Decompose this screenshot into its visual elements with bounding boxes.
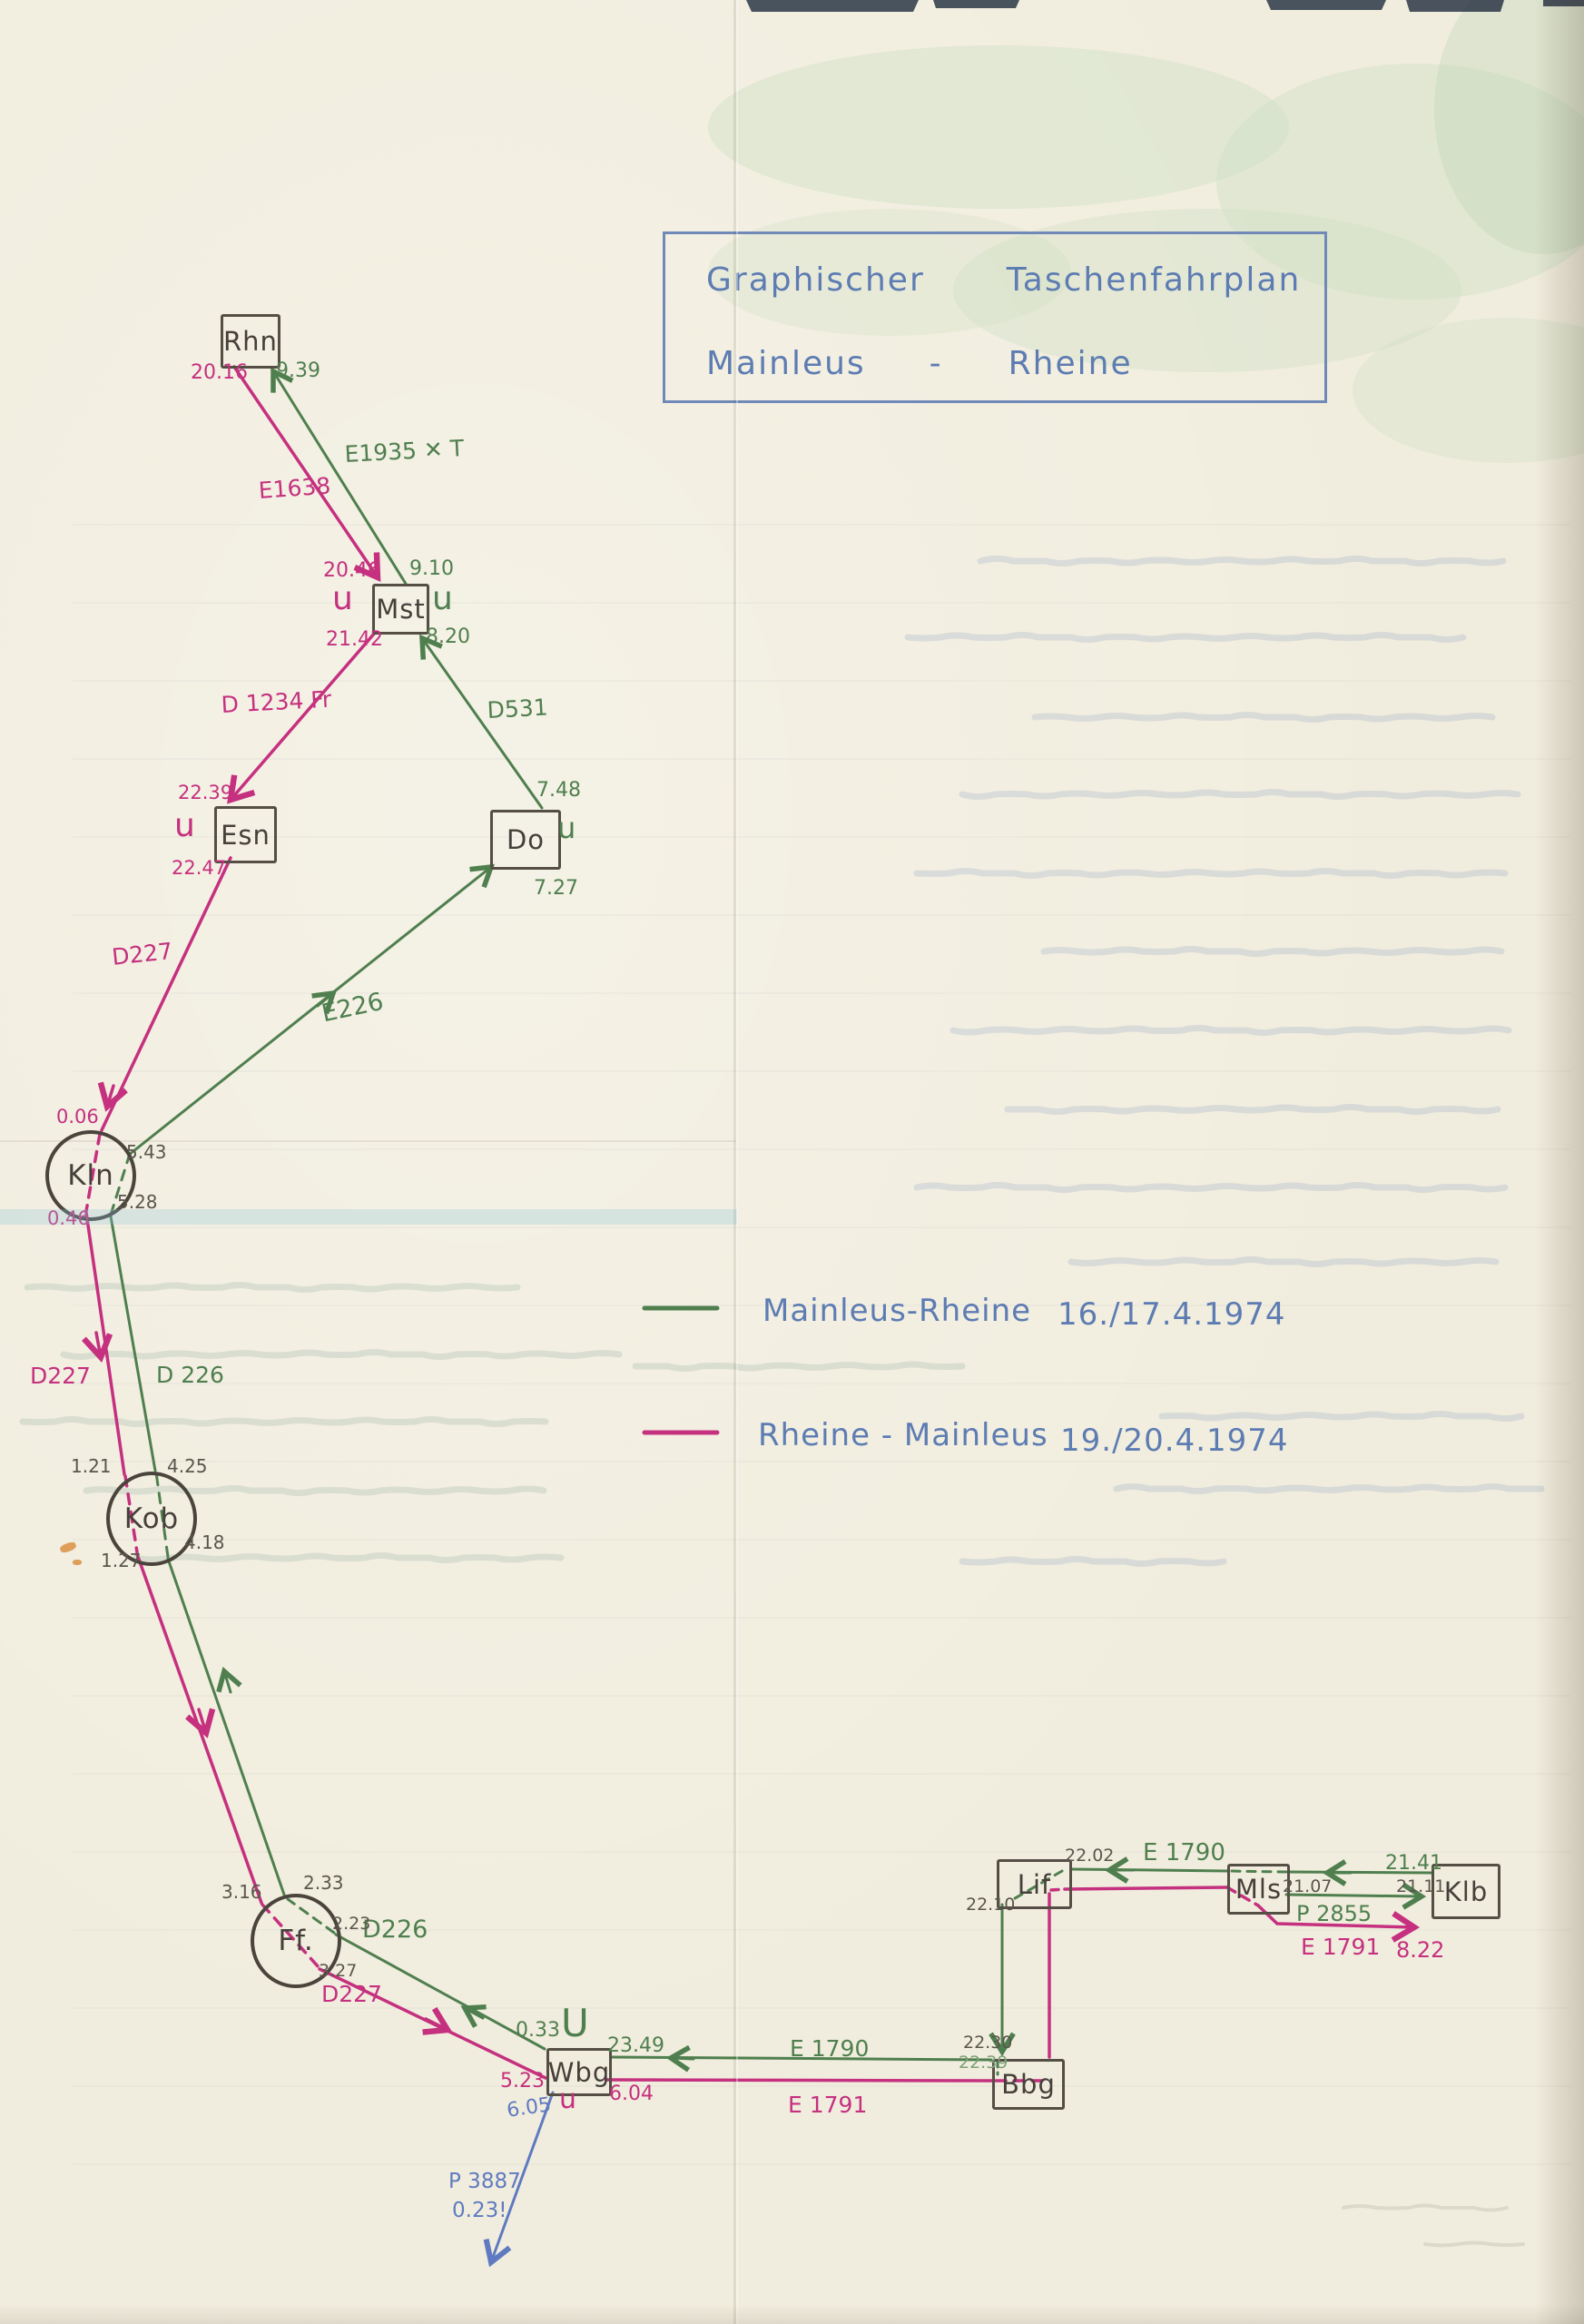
title-word-taschenfahrplan: Taschenfahrplan xyxy=(1007,261,1302,299)
label-5-28: 5.28 xyxy=(117,1193,158,1211)
station-label-rhn: Rhn xyxy=(223,326,278,357)
label-e1935-t: E1935 ✕ T xyxy=(344,437,465,466)
label-9-39: 9.39 xyxy=(276,361,320,381)
station-label-kob: Kob xyxy=(124,1502,179,1535)
station-label-do: Do xyxy=(507,824,545,855)
page-edge-shadow xyxy=(1534,0,1584,2324)
label-e-1790: E 1790 xyxy=(790,2037,869,2060)
top-edge-ink-marks xyxy=(746,0,1584,12)
label-7-27: 7.27 xyxy=(534,879,578,899)
label-u: U xyxy=(561,2004,589,2043)
label-d227: D227 xyxy=(321,1983,382,2005)
blue-band-artifact xyxy=(0,1209,737,1225)
label-22-39: 22.39 xyxy=(959,2054,1008,2072)
station-label-lif: Lif xyxy=(1018,1869,1051,1900)
label-1-21: 1.21 xyxy=(71,1457,112,1475)
legend-green-route: Mainleus-Rheine xyxy=(762,1293,1031,1329)
page-bottom-shadow xyxy=(0,2304,1584,2324)
station-esn: Esn xyxy=(214,806,277,863)
label-21-11: 21.11 xyxy=(1396,1878,1445,1896)
station-mst: Mst xyxy=(372,584,429,635)
title-dash: - xyxy=(930,345,943,382)
label-u: u xyxy=(557,813,576,842)
station-label-wbg: Wbg xyxy=(548,2057,611,2088)
label-22-30: 22.30 xyxy=(963,2034,1012,2052)
station-label-ff: Ff. xyxy=(278,1925,313,1957)
label-6-04: 6.04 xyxy=(609,2084,654,2104)
title-box: GraphischerTaschenfahrplan Mainleus-Rhei… xyxy=(663,231,1327,403)
label-20-16: 20.16 xyxy=(191,363,248,383)
station-rhn: Rhn xyxy=(221,314,280,369)
label-p-2855: P 2855 xyxy=(1296,1903,1372,1925)
label-7-48: 7.48 xyxy=(536,781,581,801)
title-word-graphischer: Graphischer xyxy=(706,261,925,299)
label-23-49: 23.49 xyxy=(607,2036,664,2056)
label-22-47: 22.47 xyxy=(172,859,226,878)
title-line2: Mainleus-Rheine xyxy=(706,345,1133,382)
legend-pink-route: Rheine - Mainleus xyxy=(758,1417,1048,1453)
station-label-esn: Esn xyxy=(221,820,271,851)
label-u: u xyxy=(432,583,453,615)
station-wbg: Wbg xyxy=(546,2048,612,2096)
label-22-10: 22.10 xyxy=(966,1896,1015,1914)
title-word-mainleus: Mainleus xyxy=(706,345,866,382)
label-0-23: 0.23! xyxy=(452,2201,507,2221)
label-2-33: 2.33 xyxy=(303,1874,344,1892)
legend-pink-date: 19./20.4.1974 xyxy=(1060,1423,1289,1459)
label-d227: D227 xyxy=(111,940,173,969)
station-do: Do xyxy=(490,810,561,870)
label-e-1791: E 1791 xyxy=(1301,1935,1380,1958)
label-22-02: 22.02 xyxy=(1065,1847,1114,1865)
bleed-through-handwriting xyxy=(23,525,1570,2246)
label-3-27: 3.27 xyxy=(319,1963,357,1980)
label-d531: D531 xyxy=(487,695,548,721)
label-21-07: 21.07 xyxy=(1283,1878,1332,1896)
label-5-43: 5.43 xyxy=(126,1143,167,1161)
label-20-46: 20.46 xyxy=(323,561,380,581)
label-2-23: 2.23 xyxy=(332,1915,370,1933)
station-mls: Mls xyxy=(1227,1864,1290,1915)
label-0-33: 0.33 xyxy=(516,2021,560,2041)
station-label-bbg: Bbg xyxy=(1001,2069,1056,2100)
label-u: u xyxy=(174,810,195,842)
orange-speck-small xyxy=(73,1560,82,1565)
station-label-mls: Mls xyxy=(1235,1874,1282,1905)
station-label-kln: Kln xyxy=(67,1159,114,1192)
label-u: u xyxy=(559,2086,576,2113)
label-p-3887: P 3887 xyxy=(448,2171,521,2192)
label-5-23: 5.23 xyxy=(500,2072,545,2092)
label-9-10: 9.10 xyxy=(409,559,454,579)
label-3-16: 3.16 xyxy=(221,1883,262,1901)
label-e-1790: E 1790 xyxy=(1143,1841,1225,1865)
vertical-fold-crease xyxy=(733,0,736,2324)
title-word-rheine: Rheine xyxy=(1008,345,1133,382)
label-22-39: 22.39 xyxy=(178,783,232,803)
title-line1: GraphischerTaschenfahrplan xyxy=(706,261,1301,299)
label-1-27: 1.27 xyxy=(101,1551,142,1570)
label-e1638: E1638 xyxy=(258,474,331,501)
label-d227: D227 xyxy=(30,1364,91,1387)
label-21-42: 21.42 xyxy=(326,630,383,650)
label-4-18: 4.18 xyxy=(184,1533,225,1551)
station-label-mst: Mst xyxy=(376,594,426,625)
label-d226: D226 xyxy=(362,1917,428,1942)
label-e-1791: E 1791 xyxy=(788,2093,867,2116)
legend-green-date: 16./17.4.1974 xyxy=(1058,1296,1286,1333)
label-d-226: D 226 xyxy=(156,1364,224,1386)
label-u: u xyxy=(332,583,353,615)
label-8-20: 8.20 xyxy=(426,627,470,647)
label-4-25: 4.25 xyxy=(167,1457,208,1475)
label-21-41: 21.41 xyxy=(1385,1854,1442,1874)
label-8-22: 8.22 xyxy=(1396,1939,1444,1961)
label-d-1234-fr: D 1234 Fr xyxy=(221,688,332,716)
horizontal-fold-crease xyxy=(0,1140,735,1142)
station-label-klb: Klb xyxy=(1444,1876,1488,1907)
label-0-06: 0.06 xyxy=(56,1108,99,1127)
scanned-timetable-page: GraphischerTaschenfahrplan Mainleus-Rhei… xyxy=(0,0,1584,2324)
